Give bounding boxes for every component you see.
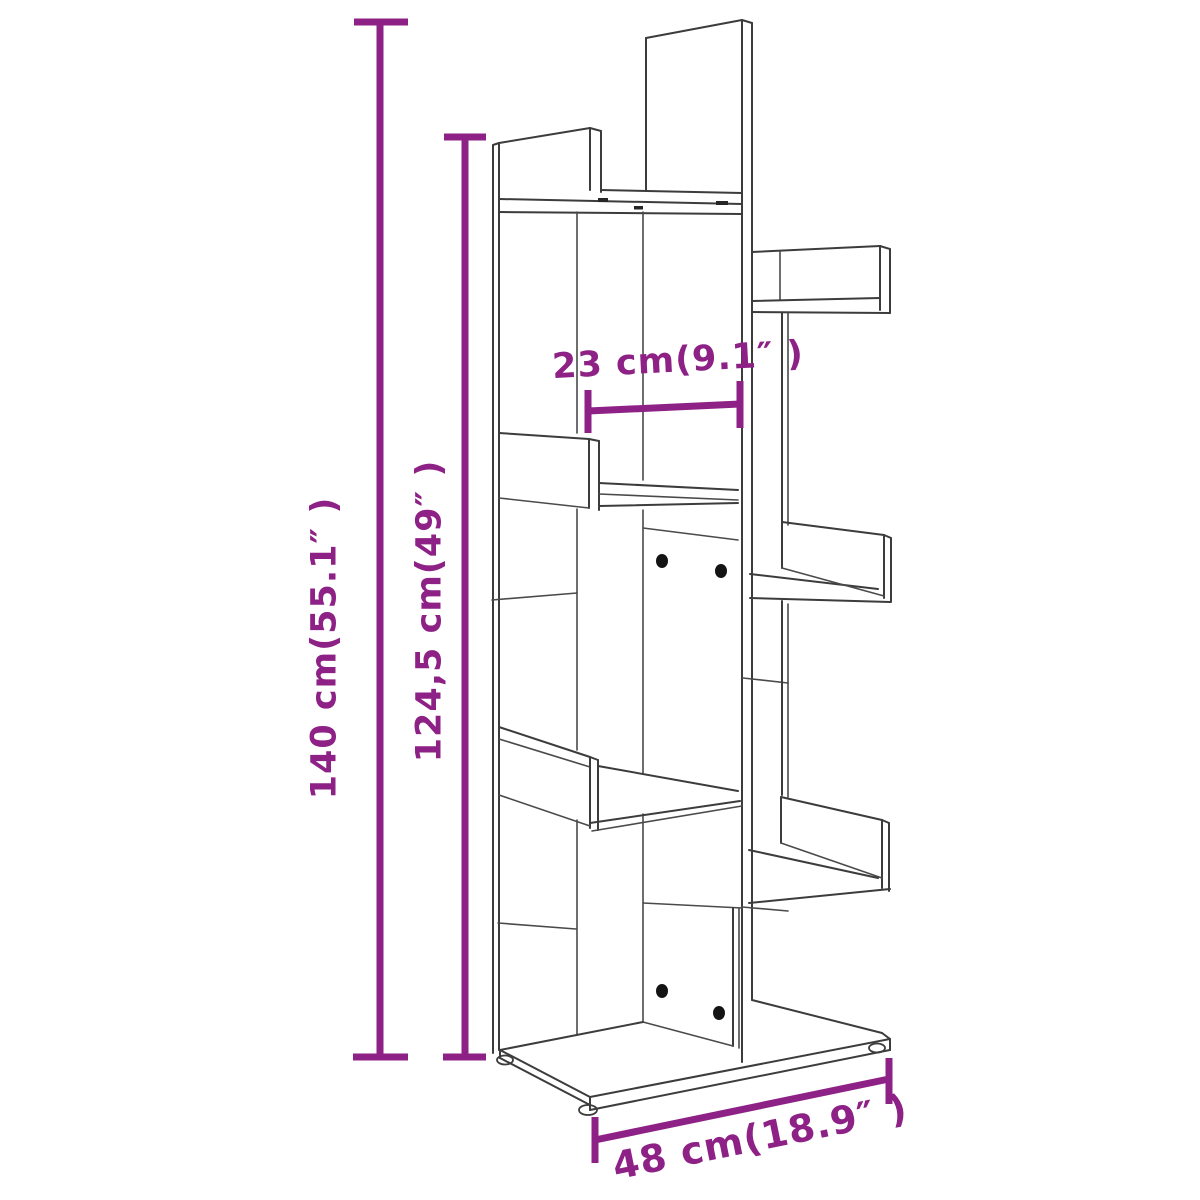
right-shelf-middle: [750, 522, 891, 797]
left-shelf-lower: [499, 727, 742, 831]
left-side-panel: [493, 143, 513, 1065]
top-center-back-panel: [646, 20, 742, 190]
top-left-back-panel: [499, 128, 601, 192]
bookshelf-line-art: [0, 0, 1200, 1200]
dimension-label-total-height: 140 cm(55.1″ ): [308, 497, 343, 800]
right-shelf-lower: [749, 797, 890, 903]
center-back-panel-middle: [643, 528, 738, 578]
dimension-line-inner-width: [588, 381, 740, 433]
base-plate: [500, 1000, 890, 1115]
left-shelf-middle: [499, 433, 738, 510]
dimension-diagram: 140 cm(55.1″ ) 124,5 cm(49″ ) 23 cm(9.1″…: [0, 0, 1200, 1200]
right-shelf-upper: [752, 246, 890, 525]
center-back-panel-bottom: [643, 903, 742, 1048]
top-shelf: [499, 190, 742, 214]
dimension-label-side-height: 124,5 cm(49″ ): [413, 460, 448, 763]
dimension-line-total-height: [353, 22, 408, 1057]
center-inner-dividers: [492, 212, 643, 1035]
